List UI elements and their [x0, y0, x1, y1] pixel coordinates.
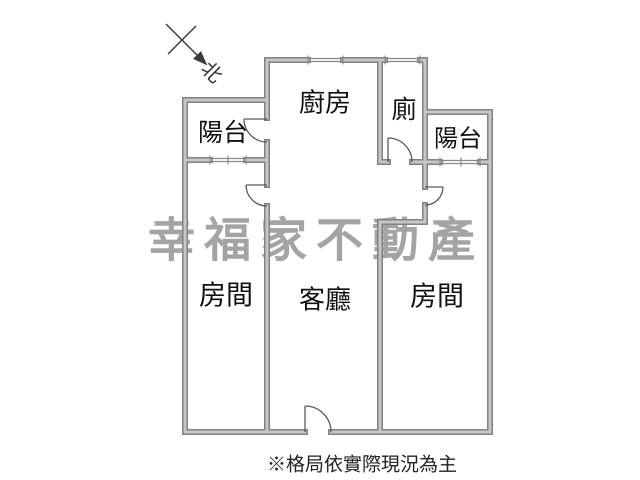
- room-label-kitchen: 廚房: [299, 83, 351, 120]
- window-balcony-right: [440, 158, 480, 167]
- window-balcony-left: [210, 156, 246, 165]
- room-label-living-room: 客廳: [299, 280, 351, 317]
- room-label-balcony-right: 陽台: [434, 119, 482, 154]
- window-kitchen-top: [308, 56, 343, 65]
- room-label-toilet: 廁: [391, 90, 416, 126]
- door-entry: [305, 406, 331, 432]
- floor-plan-drawing: [0, 0, 640, 480]
- door-toilet: [388, 138, 412, 162]
- floor-plan: 幸福家不動產 陽台: [0, 0, 640, 480]
- room-label-balcony-left: 陽台: [198, 113, 248, 149]
- window-toilet-top: [385, 56, 420, 65]
- north-arrow-icon: [166, 24, 206, 64]
- room-label-bedroom-right: 房間: [410, 275, 464, 314]
- door-bedroom-left: [246, 185, 267, 206]
- footnote: ※格局依實際現況為主: [267, 450, 457, 477]
- room-label-bedroom-left: 房間: [199, 274, 253, 313]
